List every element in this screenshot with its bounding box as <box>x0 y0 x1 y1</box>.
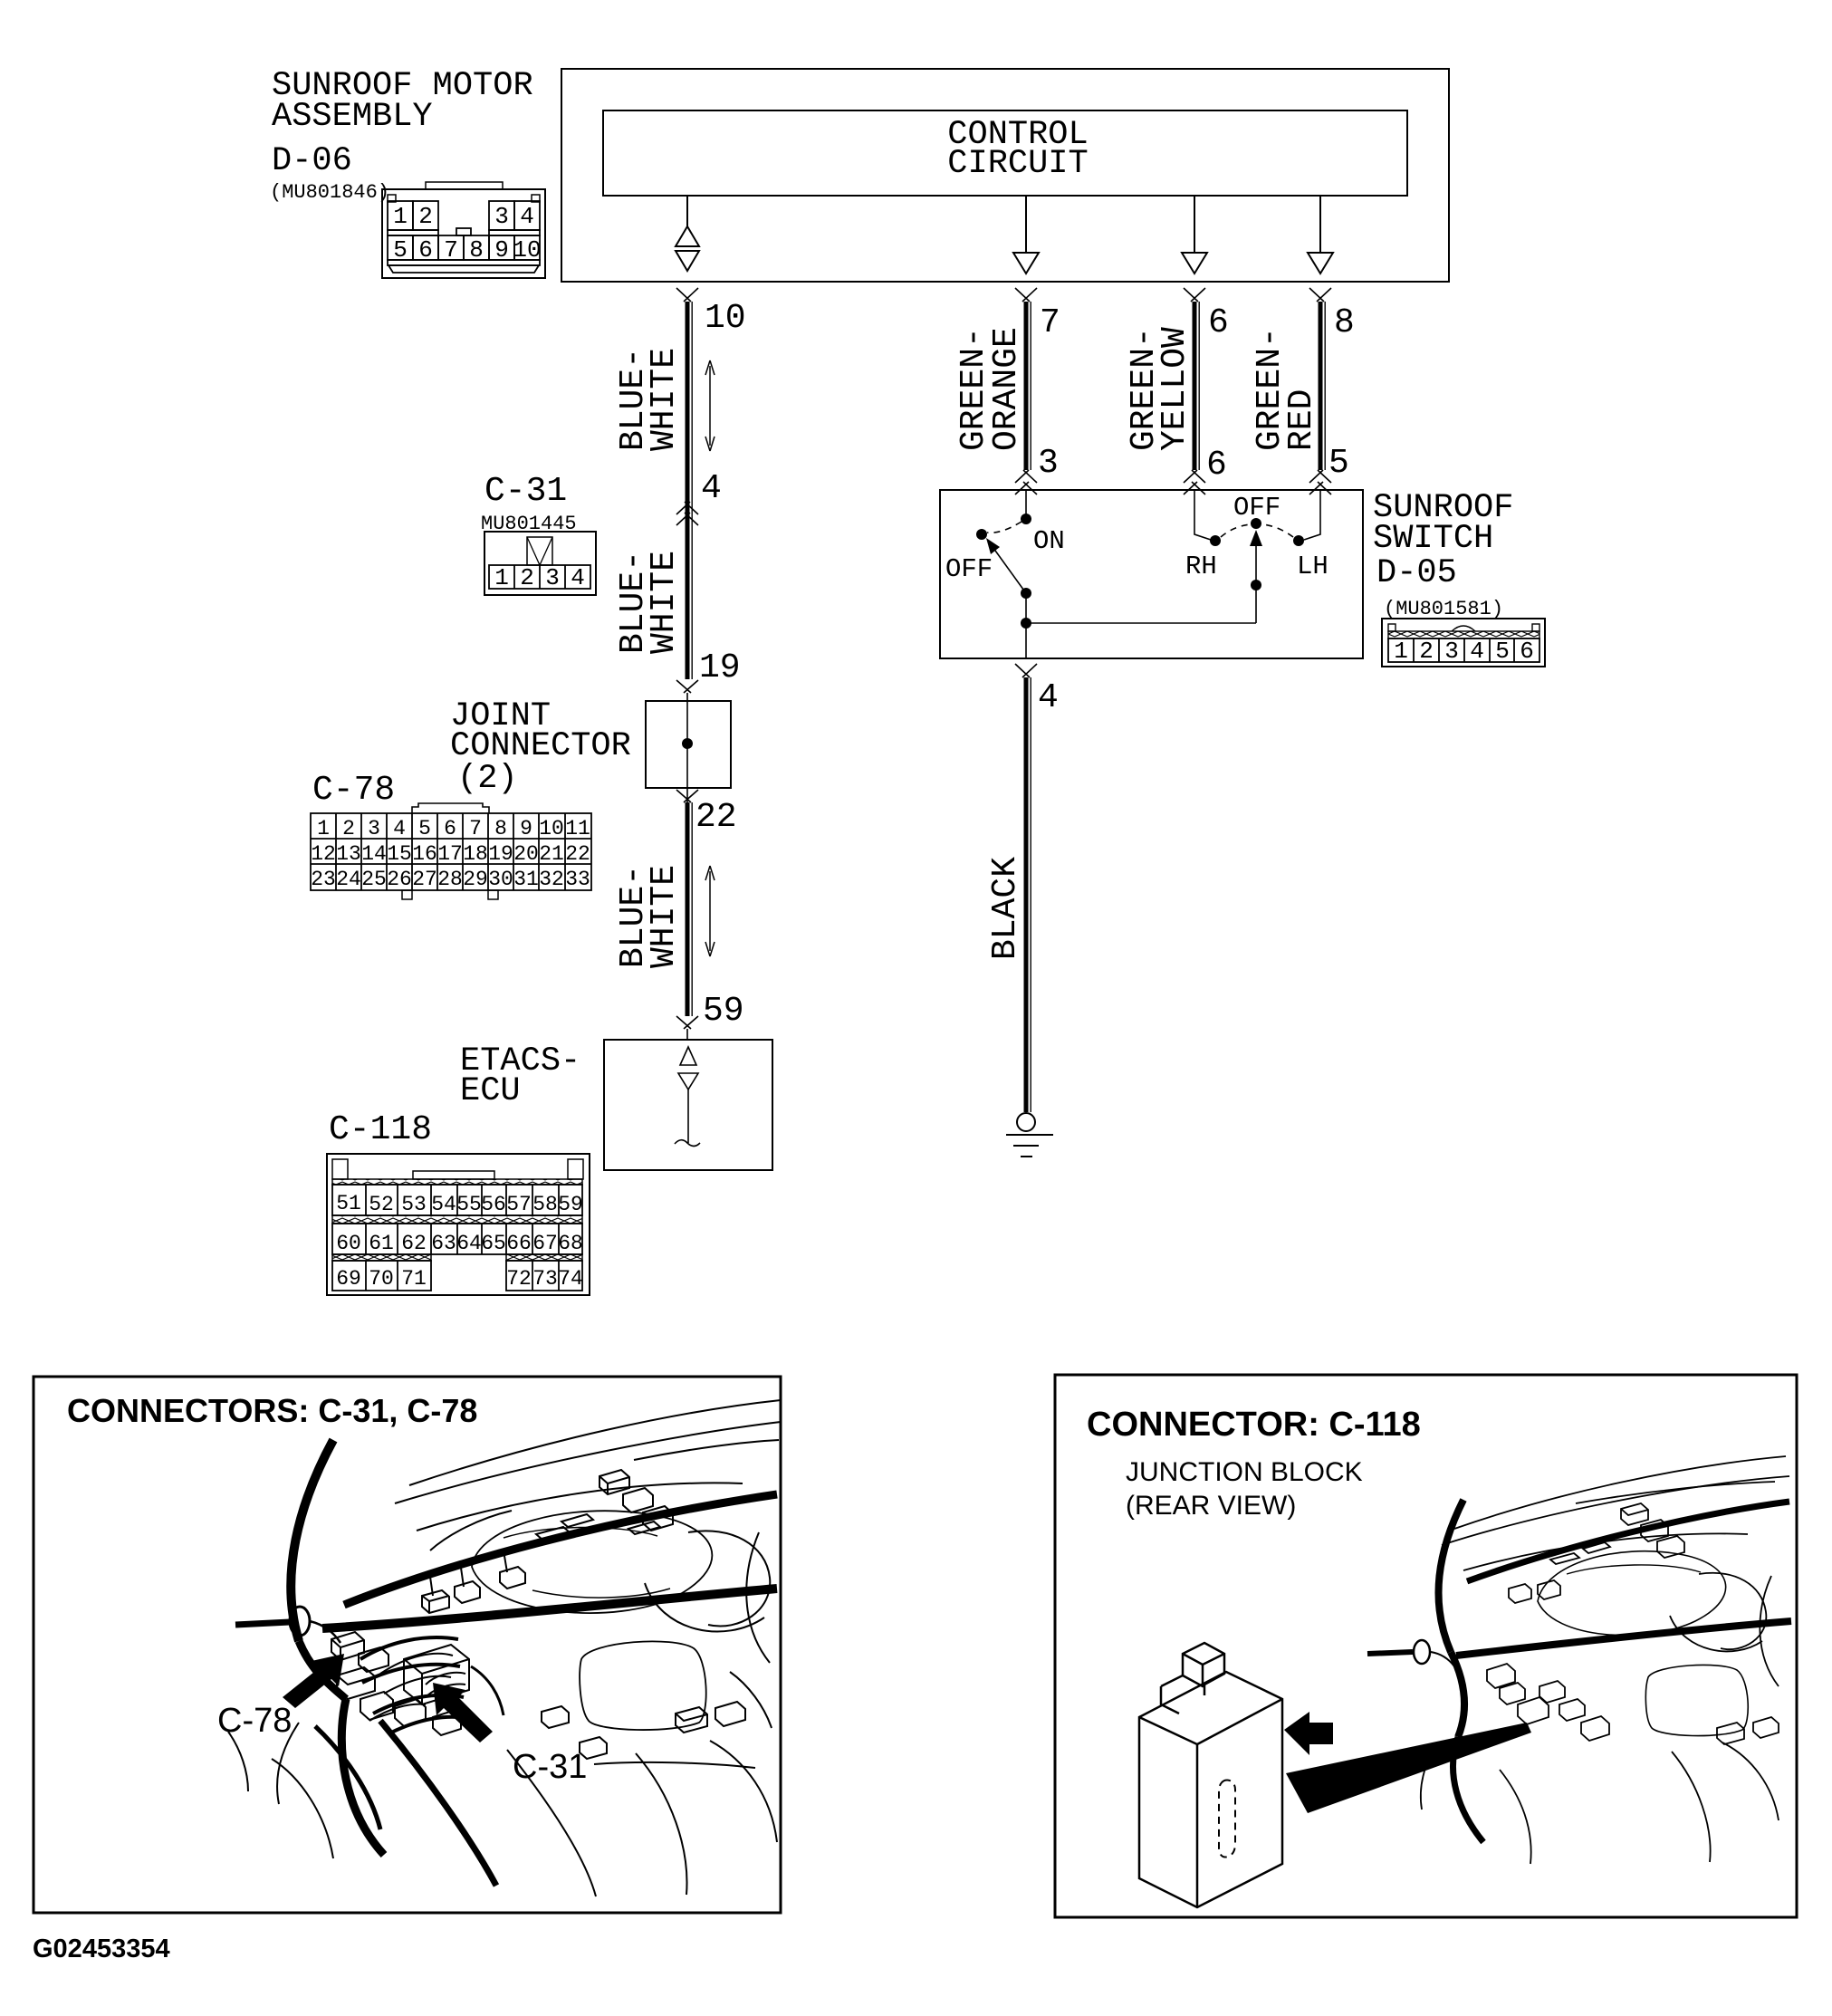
svg-text:7: 7 <box>444 236 458 264</box>
svg-text:51: 51 <box>336 1192 361 1215</box>
svg-text:25: 25 <box>361 868 387 891</box>
svg-text:RH: RH <box>1185 552 1217 581</box>
svg-text:5: 5 <box>393 236 408 264</box>
svg-text:ON: ON <box>1033 526 1065 556</box>
svg-text:20: 20 <box>513 842 539 866</box>
svg-text:70: 70 <box>369 1267 394 1291</box>
svg-text:11: 11 <box>565 817 590 840</box>
svg-text:C-118: C-118 <box>329 1110 432 1149</box>
svg-text:71: 71 <box>401 1267 427 1291</box>
svg-text:7: 7 <box>1040 303 1060 342</box>
svg-text:10: 10 <box>539 817 564 840</box>
svg-text:RED: RED <box>1282 389 1321 451</box>
svg-text:2: 2 <box>418 203 433 230</box>
svg-text:57: 57 <box>506 1193 532 1216</box>
svg-text:(REAR VIEW): (REAR VIEW) <box>1126 1491 1296 1521</box>
svg-text:4: 4 <box>393 817 406 840</box>
svg-text:ASSEMBLY: ASSEMBLY <box>272 98 433 136</box>
svg-text:6: 6 <box>1208 303 1229 342</box>
svg-text:1: 1 <box>317 817 330 840</box>
svg-text:72: 72 <box>506 1267 532 1291</box>
svg-text:(MU801846): (MU801846) <box>270 181 389 204</box>
svg-text:22: 22 <box>695 798 737 837</box>
svg-text:2: 2 <box>342 817 355 840</box>
svg-text:33: 33 <box>565 868 590 891</box>
svg-text:18: 18 <box>463 842 488 866</box>
svg-text:30: 30 <box>488 868 513 891</box>
svg-text:29: 29 <box>463 868 488 891</box>
svg-text:68: 68 <box>558 1232 583 1255</box>
svg-text:SWITCH: SWITCH <box>1373 520 1493 558</box>
svg-text:4: 4 <box>1038 678 1059 717</box>
svg-text:3: 3 <box>545 564 560 591</box>
svg-text:24: 24 <box>336 868 361 891</box>
svg-text:55: 55 <box>456 1193 482 1216</box>
svg-text:JUNCTION BLOCK: JUNCTION BLOCK <box>1126 1457 1363 1487</box>
svg-text:67: 67 <box>532 1232 558 1255</box>
svg-text:27: 27 <box>412 868 437 891</box>
svg-text:53: 53 <box>401 1193 427 1216</box>
svg-text:58: 58 <box>532 1193 558 1216</box>
svg-text:8: 8 <box>494 817 507 840</box>
svg-text:31: 31 <box>513 868 539 891</box>
svg-text:60: 60 <box>336 1232 361 1255</box>
svg-text:4: 4 <box>1470 638 1484 665</box>
svg-text:19: 19 <box>488 842 513 866</box>
svg-text:61: 61 <box>369 1232 394 1255</box>
svg-text:19: 19 <box>699 648 741 687</box>
svg-text:WHITE: WHITE <box>645 551 684 654</box>
svg-text:6: 6 <box>1520 638 1534 665</box>
svg-text:14: 14 <box>361 842 387 866</box>
svg-text:12: 12 <box>311 842 336 866</box>
svg-text:73: 73 <box>532 1267 558 1291</box>
svg-text:65: 65 <box>481 1232 506 1255</box>
svg-text:74: 74 <box>558 1267 583 1291</box>
svg-text:1: 1 <box>494 564 509 591</box>
svg-text:5: 5 <box>418 817 431 840</box>
svg-text:4: 4 <box>701 469 722 508</box>
svg-text:9: 9 <box>494 236 509 264</box>
svg-text:CIRCUIT: CIRCUIT <box>947 145 1088 183</box>
svg-text:1: 1 <box>1394 638 1408 665</box>
svg-text:63: 63 <box>431 1232 456 1255</box>
svg-text:59: 59 <box>703 992 744 1031</box>
svg-text:13: 13 <box>336 842 361 866</box>
svg-text:3: 3 <box>368 817 380 840</box>
svg-text:10: 10 <box>513 236 541 264</box>
svg-text:9: 9 <box>520 817 532 840</box>
svg-text:6: 6 <box>418 236 433 264</box>
svg-text:ORANGE: ORANGE <box>987 327 1026 451</box>
svg-text:23: 23 <box>311 868 336 891</box>
svg-text:4: 4 <box>571 564 585 591</box>
svg-text:56: 56 <box>481 1193 506 1216</box>
svg-text:5: 5 <box>1328 444 1349 483</box>
svg-text:WHITE: WHITE <box>645 865 684 968</box>
svg-text:ECU: ECU <box>460 1072 521 1110</box>
svg-text:(2): (2) <box>457 760 518 798</box>
svg-text:54: 54 <box>431 1193 456 1216</box>
svg-text:2: 2 <box>1419 638 1434 665</box>
svg-text:8: 8 <box>469 236 484 264</box>
svg-text:59: 59 <box>558 1193 583 1216</box>
svg-text:3: 3 <box>494 203 509 230</box>
svg-text:3: 3 <box>1038 444 1059 483</box>
svg-text:17: 17 <box>437 842 463 866</box>
svg-text:CONNECTOR: C-118: CONNECTOR: C-118 <box>1087 1406 1421 1444</box>
svg-text:32: 32 <box>539 868 564 891</box>
svg-text:64: 64 <box>456 1232 482 1255</box>
svg-text:6: 6 <box>1206 446 1227 485</box>
svg-text:69: 69 <box>336 1267 361 1291</box>
svg-text:10: 10 <box>705 299 746 338</box>
svg-text:LH: LH <box>1297 552 1328 581</box>
svg-text:2: 2 <box>520 564 534 591</box>
svg-text:G02453354: G02453354 <box>33 1934 170 1963</box>
svg-text:CONNECTORS: C-31, C-78: CONNECTORS: C-31, C-78 <box>67 1392 477 1429</box>
svg-text:52: 52 <box>369 1193 394 1216</box>
svg-text:YELLOW: YELLOW <box>1156 327 1194 451</box>
svg-text:C-78: C-78 <box>217 1702 292 1740</box>
svg-text:1: 1 <box>393 203 408 230</box>
svg-text:62: 62 <box>401 1232 427 1255</box>
svg-text:16: 16 <box>412 842 437 866</box>
svg-text:WHITE: WHITE <box>645 348 684 451</box>
svg-text:D-06: D-06 <box>272 142 352 180</box>
svg-text:28: 28 <box>437 868 463 891</box>
svg-text:BLACK: BLACK <box>986 857 1025 960</box>
svg-text:21: 21 <box>539 842 564 866</box>
svg-text:22: 22 <box>565 842 590 866</box>
svg-text:7: 7 <box>469 817 482 840</box>
svg-text:15: 15 <box>387 842 412 866</box>
svg-text:C-31: C-31 <box>513 1748 587 1786</box>
svg-text:3: 3 <box>1444 638 1459 665</box>
svg-text:26: 26 <box>387 868 412 891</box>
svg-text:4: 4 <box>520 203 534 230</box>
svg-text:C-78: C-78 <box>312 771 395 810</box>
svg-text:C-31: C-31 <box>484 472 567 511</box>
svg-text:5: 5 <box>1495 638 1510 665</box>
svg-text:OFF: OFF <box>1233 493 1280 523</box>
svg-text:D-05: D-05 <box>1376 554 1457 592</box>
svg-text:OFF: OFF <box>945 554 993 584</box>
svg-text:6: 6 <box>444 817 456 840</box>
svg-text:(MU801581): (MU801581) <box>1384 598 1503 620</box>
svg-text:66: 66 <box>506 1232 532 1255</box>
svg-text:8: 8 <box>1334 303 1355 342</box>
